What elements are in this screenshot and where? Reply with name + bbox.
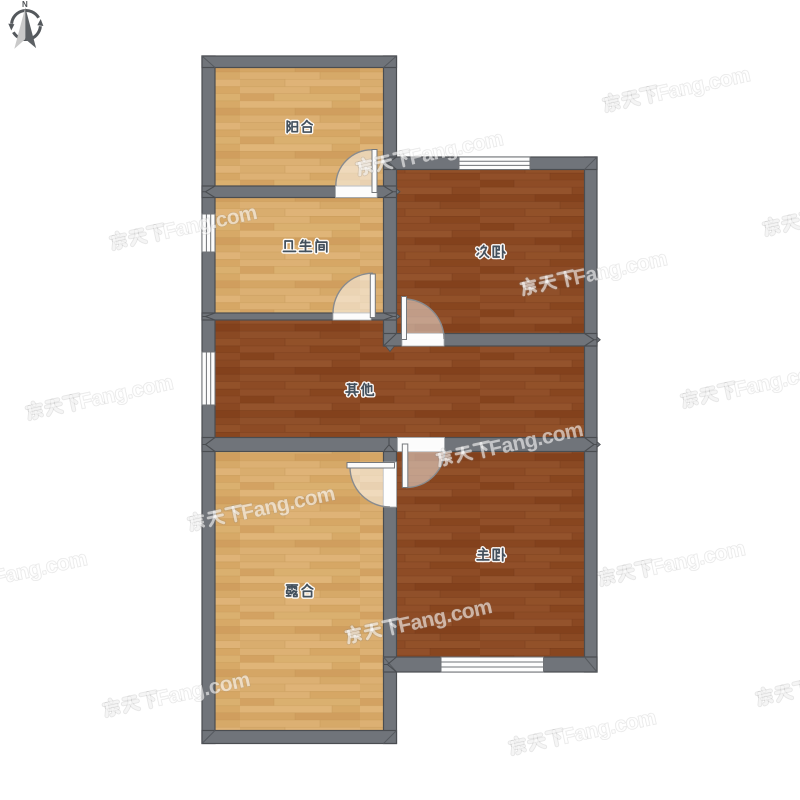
svg-text:N: N	[22, 0, 28, 9]
